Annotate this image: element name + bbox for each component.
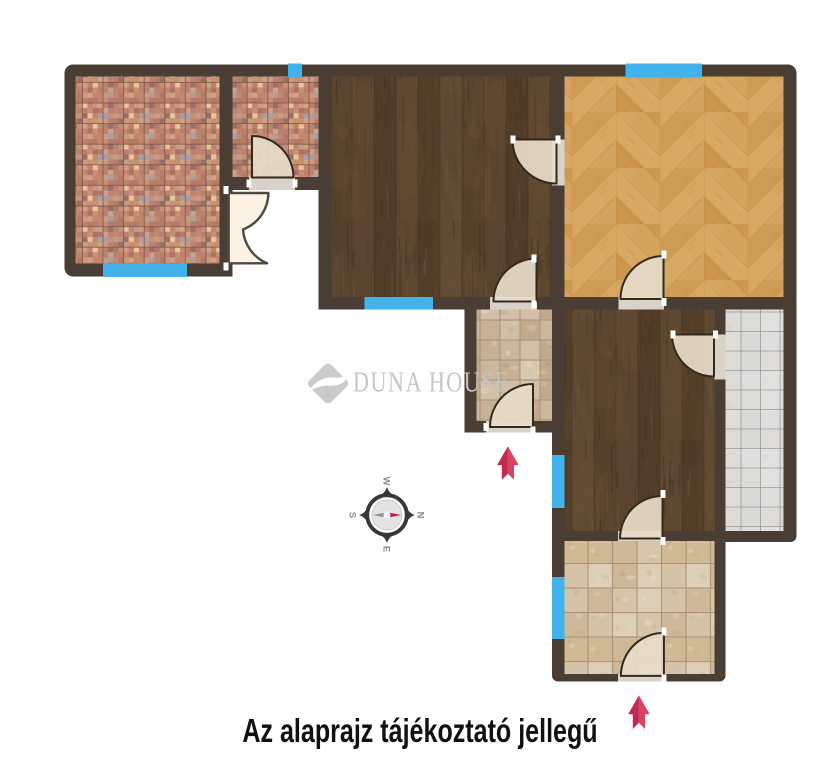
svg-text:E: E <box>381 546 392 552</box>
svg-text:W: W <box>381 477 392 486</box>
svg-text:N: N <box>415 512 426 519</box>
svg-text:S: S <box>347 512 358 518</box>
svg-text:®: ® <box>526 367 534 378</box>
svg-text:Az alaprajz tájékoztató jelleg: Az alaprajz tájékoztató jellegű <box>242 713 597 750</box>
svg-text:DUNA HOUSE: DUNA HOUSE <box>353 366 510 399</box>
